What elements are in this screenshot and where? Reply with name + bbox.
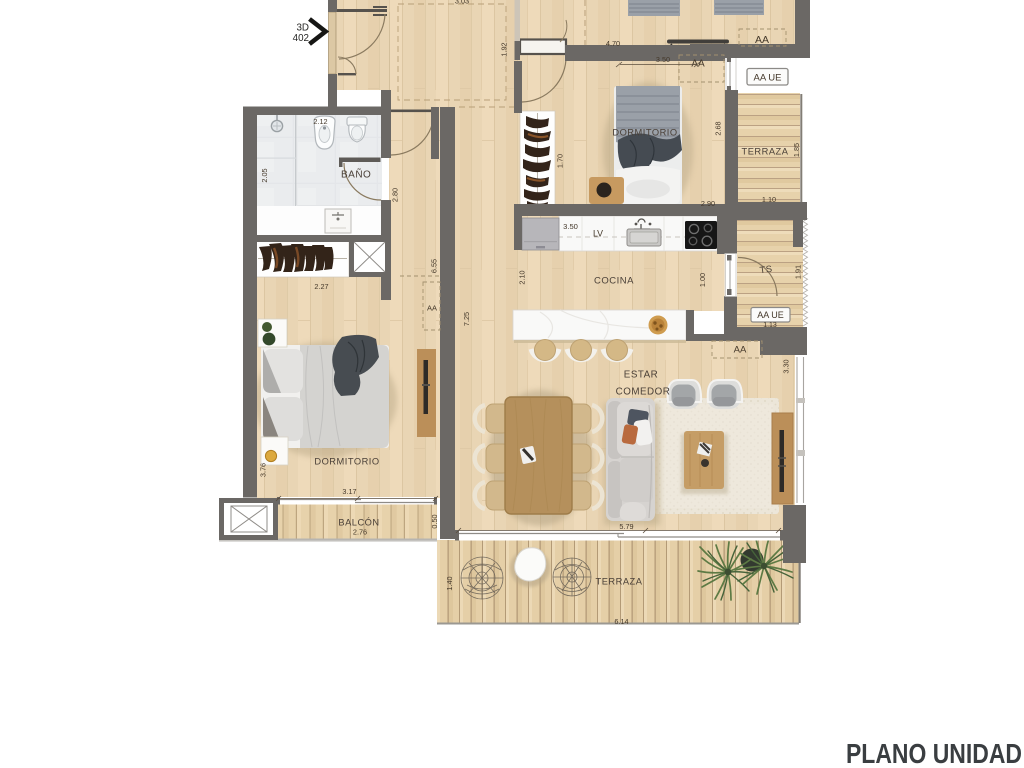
svg-text:0.50: 0.50: [430, 514, 439, 528]
svg-text:AA: AA: [427, 304, 437, 313]
svg-text:4.70: 4.70: [606, 39, 620, 48]
svg-text:3D: 3D: [296, 23, 309, 34]
svg-text:1.92: 1.92: [500, 42, 509, 56]
svg-text:3.50: 3.50: [563, 222, 578, 231]
svg-text:6.14: 6.14: [614, 617, 628, 626]
svg-text:1.40: 1.40: [445, 576, 454, 590]
svg-text:TS: TS: [759, 264, 773, 276]
svg-text:2.90: 2.90: [701, 199, 715, 208]
svg-text:DORMITORIO: DORMITORIO: [314, 457, 379, 467]
svg-text:AA: AA: [734, 345, 747, 356]
svg-text:2.12: 2.12: [313, 117, 327, 126]
svg-text:402: 402: [293, 33, 309, 44]
svg-text:2.05: 2.05: [260, 168, 269, 182]
svg-text:3.30: 3.30: [782, 359, 791, 373]
svg-text:6.55: 6.55: [430, 259, 439, 273]
svg-text:LV: LV: [593, 229, 603, 239]
svg-text:3.17: 3.17: [342, 487, 356, 496]
svg-text:2.68: 2.68: [714, 121, 723, 135]
svg-text:1.70: 1.70: [556, 154, 565, 168]
svg-text:AA UE: AA UE: [757, 310, 784, 320]
svg-text:1.91: 1.91: [794, 265, 803, 279]
svg-text:TERRAZA: TERRAZA: [596, 577, 643, 587]
svg-text:1.00: 1.00: [698, 273, 707, 287]
svg-text:3.76: 3.76: [259, 463, 268, 477]
svg-text:ESTAR: ESTAR: [624, 370, 658, 381]
svg-text:COCINA: COCINA: [594, 276, 634, 287]
svg-text:2.76: 2.76: [353, 528, 367, 537]
svg-text:3.03: 3.03: [455, 0, 469, 6]
svg-text:PLANO UNIDAD: PLANO UNIDAD: [846, 738, 1022, 768]
svg-text:AA UE: AA UE: [754, 73, 782, 84]
svg-text:1.85: 1.85: [792, 143, 801, 157]
svg-text:TERRAZA: TERRAZA: [742, 147, 789, 157]
svg-text:2.10: 2.10: [518, 270, 527, 284]
svg-text:1.13: 1.13: [763, 322, 777, 329]
svg-text:5.79: 5.79: [619, 522, 633, 531]
svg-text:3.50: 3.50: [656, 55, 670, 64]
svg-text:BALCÓN: BALCÓN: [338, 518, 379, 528]
svg-text:AA: AA: [755, 34, 769, 46]
svg-text:BAÑO: BAÑO: [341, 168, 371, 181]
svg-text:7.25: 7.25: [462, 312, 471, 326]
svg-text:2.80: 2.80: [391, 188, 400, 202]
svg-text:DORMITORIO: DORMITORIO: [612, 128, 677, 138]
svg-text:2.27: 2.27: [314, 282, 328, 291]
svg-text:1.10: 1.10: [762, 195, 776, 204]
svg-text:COMEDOR: COMEDOR: [616, 387, 671, 398]
